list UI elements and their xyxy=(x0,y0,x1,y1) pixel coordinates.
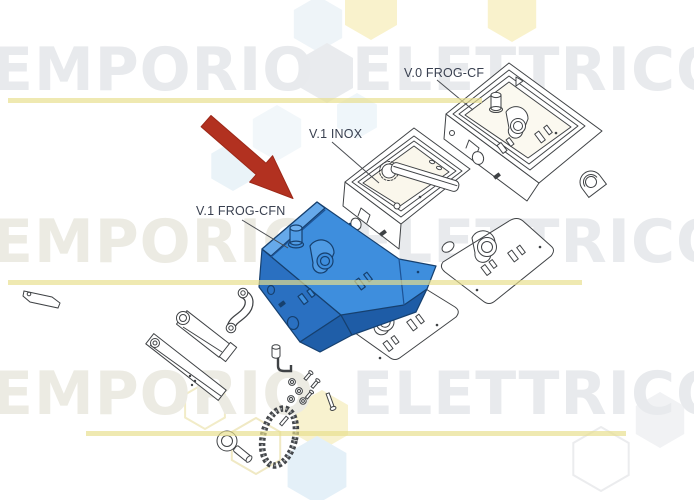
cover-plate-top xyxy=(441,219,553,304)
bracket-part xyxy=(576,167,607,198)
lever-housing xyxy=(177,311,237,362)
chain-loop xyxy=(257,405,301,469)
flat-angle-part xyxy=(23,291,60,308)
screw-kit xyxy=(288,370,337,411)
red-highlight-arrow xyxy=(201,116,293,199)
label-v0-frog-cf: V.0 FROG-CF xyxy=(404,66,484,80)
watermark-underline-row2 xyxy=(8,280,582,285)
label-v1-frog-cfn: V.1 FROG-CFN xyxy=(196,204,285,218)
curved-arm xyxy=(226,288,249,333)
release-key xyxy=(272,345,291,371)
watermark-underline-row3 xyxy=(86,431,626,436)
product-image: EMPORIO ELETTRICO EMPORIO ELETTRICO EMPO… xyxy=(0,0,694,500)
label-v1-inox: V.1 INOX xyxy=(309,127,362,141)
watermark-underline-row1 xyxy=(8,98,482,103)
box-v0-frog-cf-drawing xyxy=(444,63,602,201)
exploded-diagram xyxy=(0,0,694,500)
